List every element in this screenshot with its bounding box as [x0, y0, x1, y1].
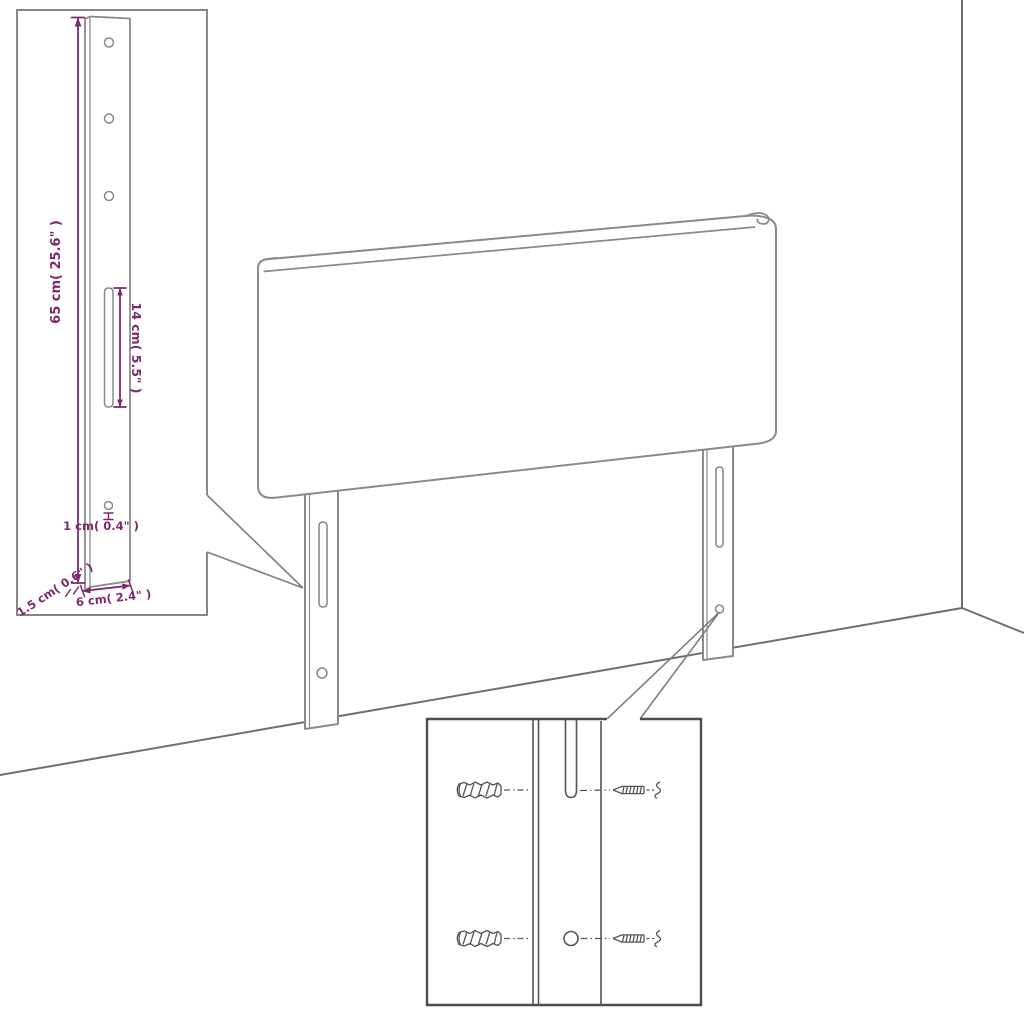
headboard-outline [258, 216, 776, 498]
mounting-detail-inset [427, 612, 720, 1005]
floor-line-right [962, 608, 1024, 633]
dimension-slot-length: 14 cm( 5.5" ) [129, 303, 144, 394]
detail-centerline-top-right [580, 790, 610, 791]
assembly-diagram: 65 cm( 25.6" ) 14 cm( 5.5" ) 1 cm( 0.4" … [0, 0, 1024, 1024]
mounting-inset-box [427, 719, 701, 1005]
left-leg [305, 468, 338, 729]
leg-detail-callout-leaders [207, 495, 303, 588]
dimension-hole-size: 1 cm( 0.4" ) [63, 519, 139, 533]
headboard-panel [258, 213, 776, 498]
assembly-diagram-page: 65 cm( 25.6" ) 14 cm( 5.5" ) 1 cm( 0.4" … [0, 0, 1024, 1024]
mounting-callout-leaders [607, 612, 720, 719]
right-leg [703, 430, 733, 660]
dimension-leg-height: 65 cm( 25.6" ) [49, 220, 64, 324]
leg-bracket-drawing [85, 17, 130, 591]
